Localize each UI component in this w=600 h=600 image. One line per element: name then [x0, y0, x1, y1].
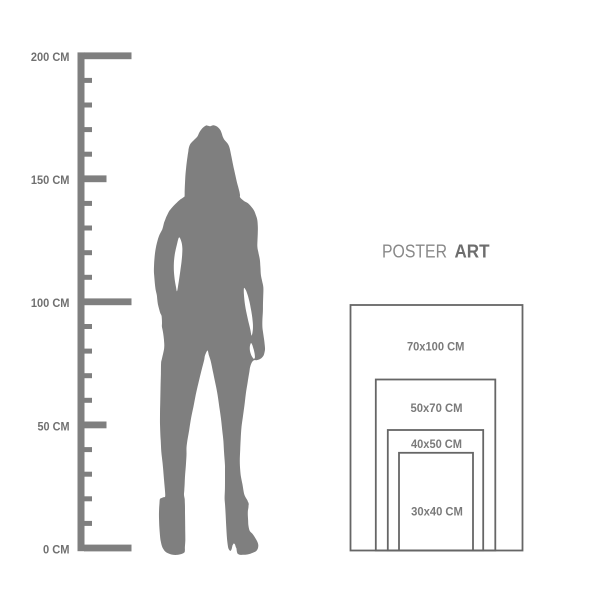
svg-text:50x70 CM: 50x70 CM [411, 401, 463, 415]
svg-text:ART: ART [455, 242, 490, 262]
svg-text:POSTER: POSTER [382, 242, 447, 262]
svg-text:30x40 CM: 30x40 CM [411, 504, 463, 518]
svg-text:200 CM: 200 CM [31, 50, 70, 64]
svg-text:0 CM: 0 CM [43, 542, 70, 556]
svg-text:100 CM: 100 CM [31, 296, 70, 310]
svg-text:50 CM: 50 CM [38, 419, 70, 433]
svg-text:40x50 CM: 40x50 CM [411, 437, 462, 451]
svg-text:70x100 CM: 70x100 CM [407, 339, 465, 353]
svg-text:150 CM: 150 CM [31, 173, 70, 187]
